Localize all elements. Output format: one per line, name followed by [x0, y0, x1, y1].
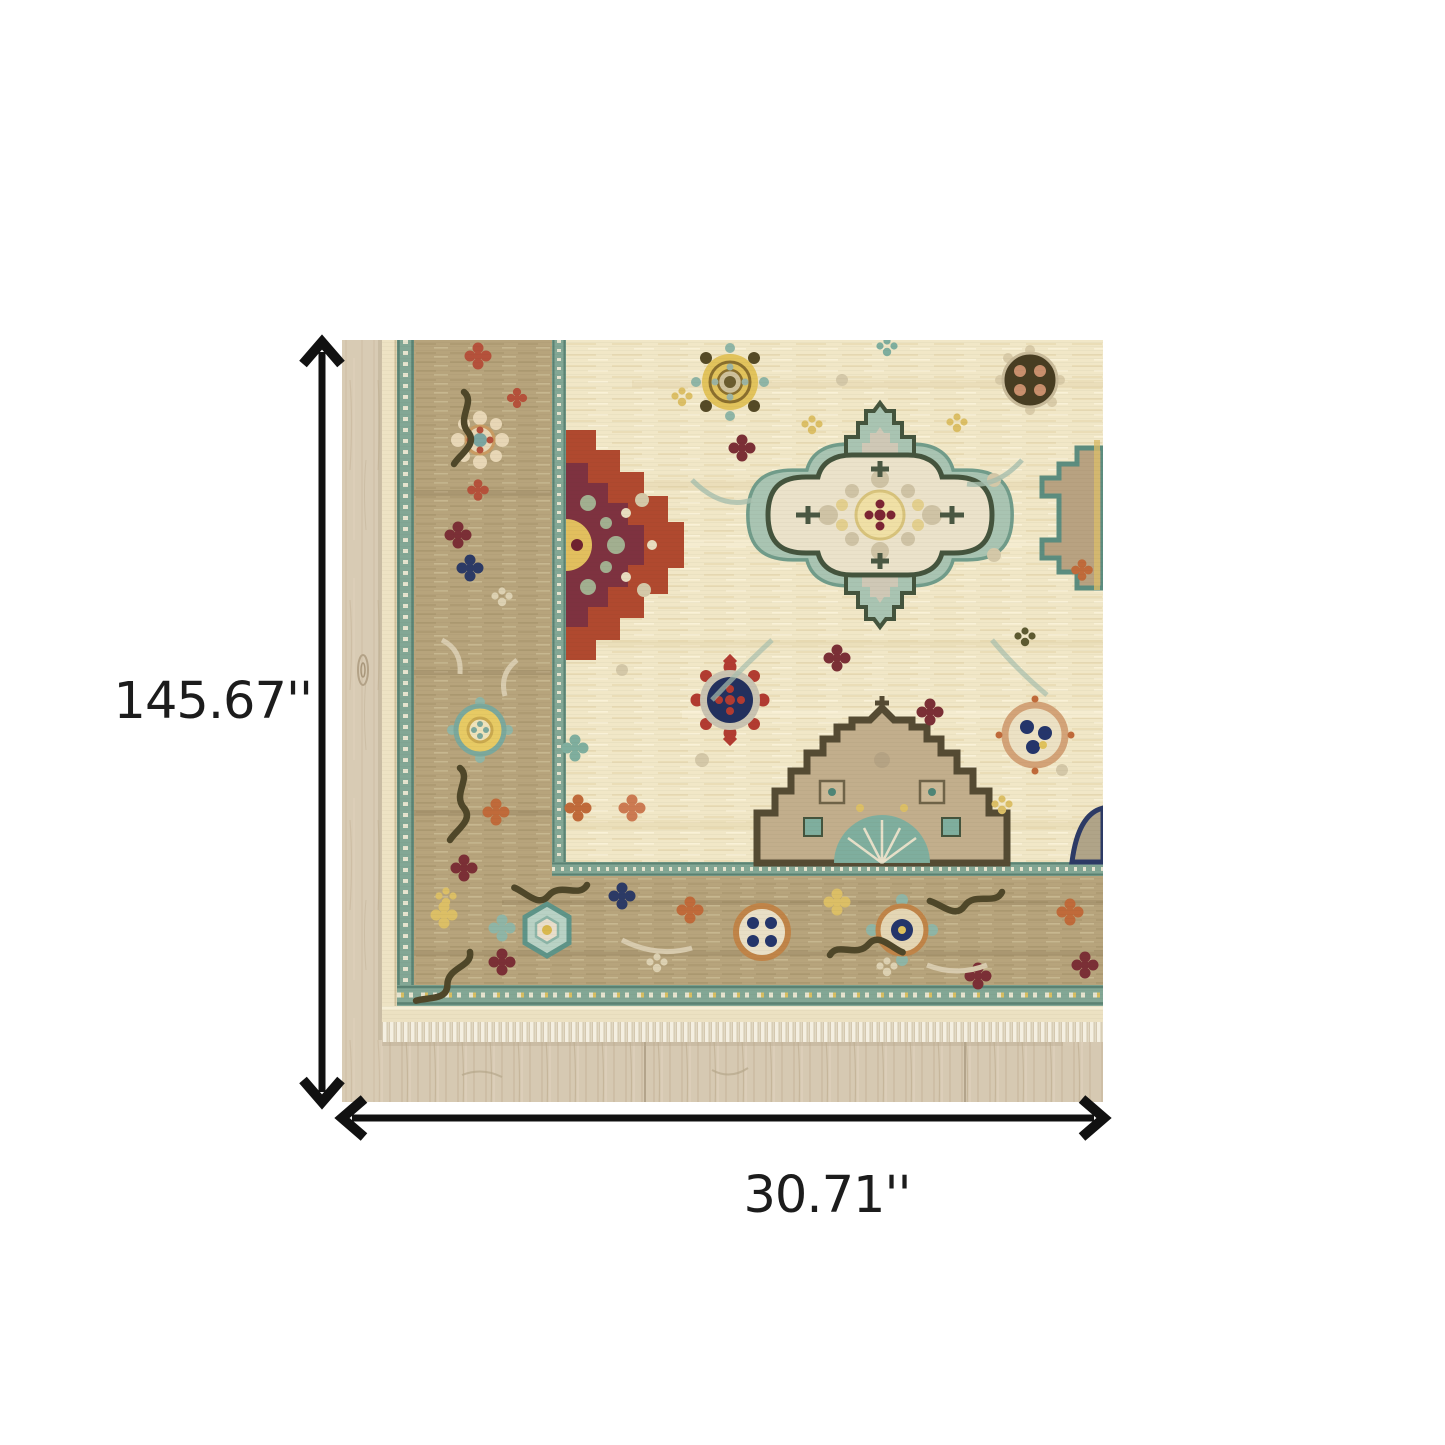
- rug-fringe: [382, 1022, 1103, 1042]
- rug-photo: [342, 340, 1103, 1102]
- width-label: 30.71'': [577, 1166, 1077, 1225]
- rug-illustration: [342, 340, 1103, 1102]
- rug: [378, 340, 1103, 1042]
- dimension-figure: 145.67'' 30.71'': [0, 0, 1445, 1445]
- width-arrow-icon: [342, 1099, 1104, 1137]
- height-label: 145.67'': [0, 672, 312, 731]
